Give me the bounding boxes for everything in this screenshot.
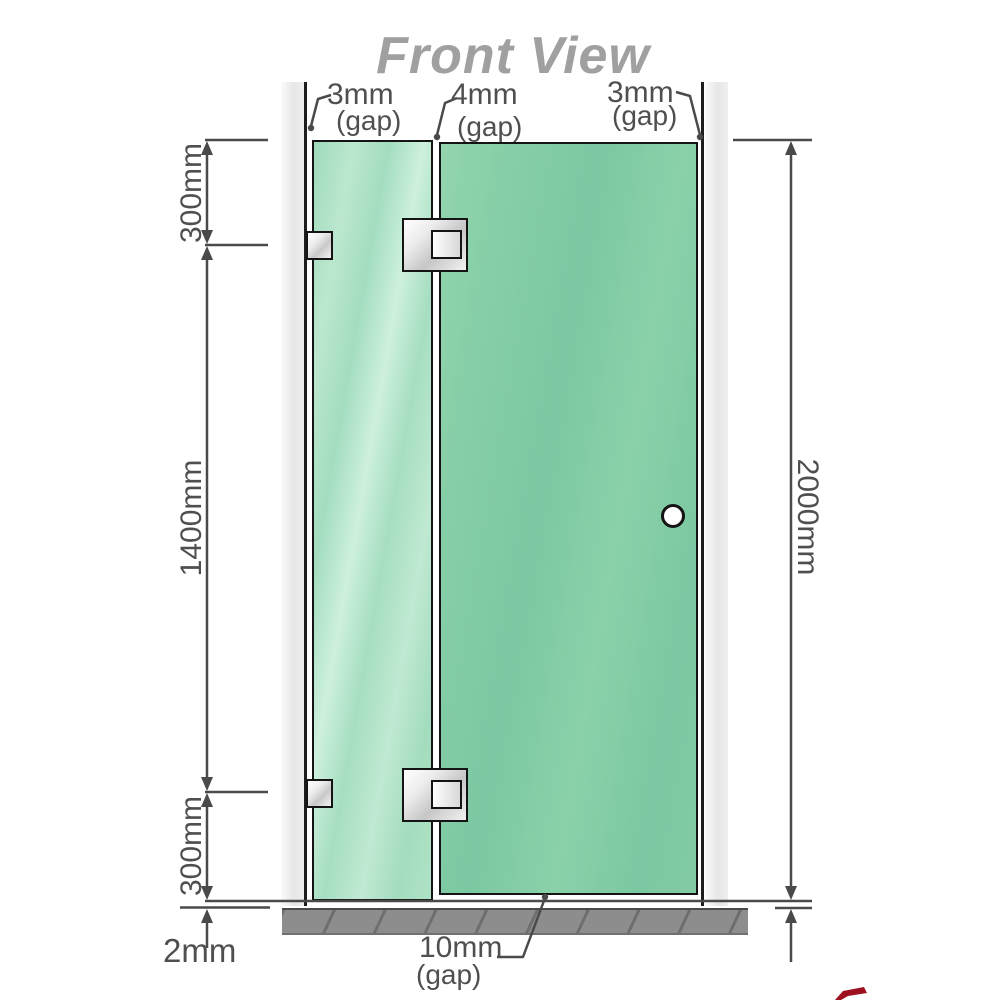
glass-hinge-bottom xyxy=(402,768,468,822)
dim-label-left-lower: 300mm xyxy=(177,796,207,896)
door-knob xyxy=(661,504,685,528)
wall-bracket-top xyxy=(306,231,333,260)
glass-hinge-top-knuckle xyxy=(431,230,462,259)
floor-base xyxy=(282,908,748,935)
right-wall xyxy=(705,82,728,906)
right-wall-edge-line xyxy=(701,82,704,906)
gap-label-top-middle-value: 4mm xyxy=(451,80,518,110)
gap-label-top-left-note: (gap) xyxy=(336,107,401,135)
dim-label-floor-gap: 2mm xyxy=(163,934,236,967)
diagram-title: Front View xyxy=(13,26,1000,86)
gap-label-top-middle-note: (gap) xyxy=(457,113,522,141)
watermark-red-mark xyxy=(835,987,867,1000)
wall-bracket-bottom xyxy=(306,779,333,808)
gap-label-bottom-note: (gap) xyxy=(416,961,481,989)
left-wall xyxy=(281,82,304,906)
dim-label-left-upper: 300mm xyxy=(177,143,207,243)
dim-label-total-height: 2000mm xyxy=(792,459,822,576)
front-view-diagram: Front View xyxy=(0,0,1000,1000)
glass-hinge-top xyxy=(402,218,468,272)
dim-label-left-middle: 1400mm xyxy=(177,460,207,577)
gap-label-top-right-note: (gap) xyxy=(612,102,677,130)
glass-hinge-bottom-knuckle xyxy=(431,780,462,809)
door-glass-panel xyxy=(439,142,698,895)
